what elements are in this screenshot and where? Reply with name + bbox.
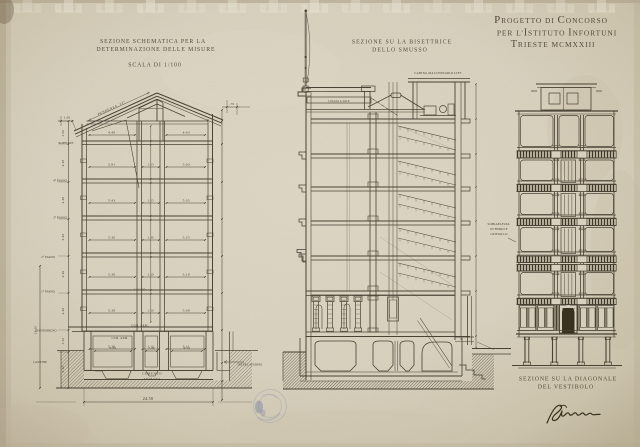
- svg-text:.70: .70: [230, 102, 235, 106]
- svg-text:5.91: 5.91: [108, 163, 115, 167]
- svg-text:4.48: 4.48: [61, 197, 65, 204]
- svg-text:5.05: 5.05: [109, 346, 116, 350]
- svg-text:PROGETTO DI CONCORSO: PROGETTO DI CONCORSO: [494, 14, 608, 26]
- svg-text:SEZIONE SU LA BISETTRICE: SEZIONE SU LA BISETTRICE: [352, 40, 452, 46]
- svg-text:SCALA DI 1/100: SCALA DI 1/100: [128, 63, 182, 69]
- svg-text:5.00: 5.00: [183, 309, 190, 313]
- svg-text:4.40: 4.40: [108, 131, 115, 135]
- svg-text:5.05: 5.05: [183, 199, 190, 203]
- svg-text:SEZIONE SCHEMATICA PER LA: SEZIONE SCHEMATICA PER LA: [100, 39, 206, 45]
- svg-text:4.43: 4.43: [183, 131, 190, 135]
- svg-text:PIANTERRENO: PIANTERRENO: [35, 329, 56, 333]
- svg-text:5.30: 5.30: [108, 309, 115, 313]
- svg-text:SOPRAELEVAZ.: SOPRAELEVAZ.: [488, 222, 511, 226]
- svg-text:1.00: 1.00: [64, 116, 71, 120]
- svg-text:24.50: 24.50: [143, 396, 154, 401]
- svg-text:DELLO SMUSSO: DELLO SMUSSO: [372, 48, 428, 54]
- svg-text:21.30: 21.30: [34, 326, 38, 335]
- svg-text:CABINA MACCHINARIO LIFT: CABINA MACCHINARIO LIFT: [414, 71, 462, 75]
- svg-text:3.30: 3.30: [61, 366, 65, 373]
- svg-text:5.30: 5.30: [108, 236, 115, 240]
- svg-text:4.48: 4.48: [61, 271, 65, 278]
- svg-text:4.52: 4.52: [183, 346, 190, 350]
- svg-text:SEZIONE SU LA DIAGONALE: SEZIONE SU LA DIAGONALE: [519, 377, 617, 383]
- svg-text:LEGNO: LEGNO: [134, 288, 145, 292]
- svg-text:DETERMINAZIONE DELLE MISURE: DETERMINAZIONE DELLE MISURE: [97, 47, 216, 53]
- svg-text:LOGGIA A SOLE: LOGGIA A SOLE: [328, 100, 350, 103]
- svg-text:5.10: 5.10: [183, 273, 190, 277]
- svg-text:5.25: 5.25: [183, 236, 190, 240]
- svg-text:INTERCAPEDINE: INTERCAPEDINE: [238, 363, 263, 367]
- svg-text:1° PIANO: 1° PIANO: [41, 290, 55, 294]
- svg-text:CEM. ARM.: CEM. ARM.: [131, 324, 149, 328]
- svg-text:4.48: 4.48: [61, 234, 65, 241]
- svg-text:5.03: 5.03: [183, 163, 190, 167]
- svg-text:3.60: 3.60: [61, 130, 65, 137]
- svg-text:ARMATO: ARMATO: [143, 377, 160, 381]
- svg-text:3.30: 3.30: [61, 338, 65, 345]
- svg-text:5.30: 5.30: [108, 273, 115, 277]
- svg-text:PER L'ISTITUTO INFORTUNI: PER L'ISTITUTO INFORTUNI: [497, 28, 617, 39]
- svg-text:TRIESTE MCMXXIII: TRIESTE MCMXXIII: [511, 39, 596, 50]
- svg-text:1.40: 1.40: [148, 346, 155, 350]
- svg-text:4.48: 4.48: [61, 160, 65, 167]
- svg-text:CEMENTO: CEMENTO: [142, 372, 162, 376]
- svg-text:CEM. ARM.: CEM. ARM.: [111, 337, 128, 340]
- svg-text:DEL VESTIBOLO: DEL VESTIBOLO: [538, 385, 594, 391]
- svg-text:2° PIANO: 2° PIANO: [41, 255, 55, 259]
- svg-text:SOFFITTE: SOFFITTE: [59, 141, 74, 145]
- svg-text:5.43: 5.43: [108, 199, 115, 203]
- svg-text:IN FERRO E: IN FERRO E: [490, 227, 507, 231]
- svg-text:4.48: 4.48: [61, 308, 65, 315]
- svg-text:CRISTALLO: CRISTALLO: [490, 232, 508, 236]
